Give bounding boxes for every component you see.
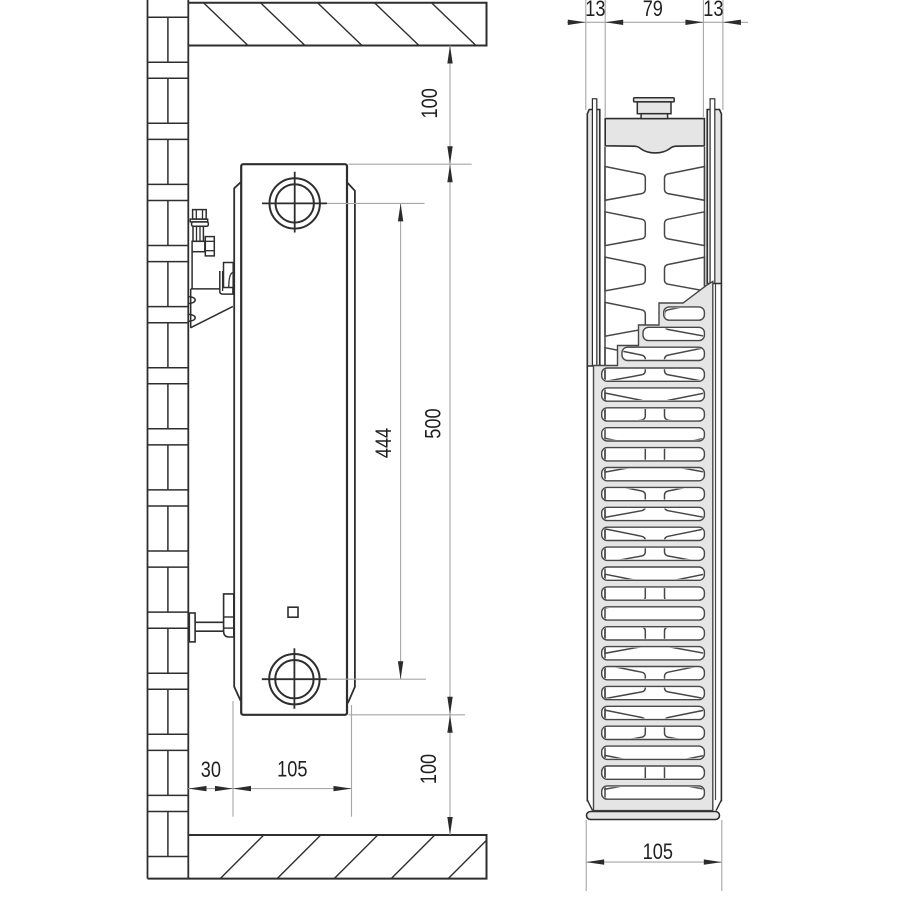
svg-text:105: 105 [643,839,673,864]
svg-text:30: 30 [201,757,221,782]
svg-text:500: 500 [421,408,446,438]
svg-text:444: 444 [371,428,396,458]
svg-text:100: 100 [417,88,442,118]
svg-text:79: 79 [643,0,663,21]
svg-text:13: 13 [703,0,723,21]
svg-text:105: 105 [277,757,307,782]
svg-text:13: 13 [585,0,605,21]
svg-text:100: 100 [416,754,441,784]
